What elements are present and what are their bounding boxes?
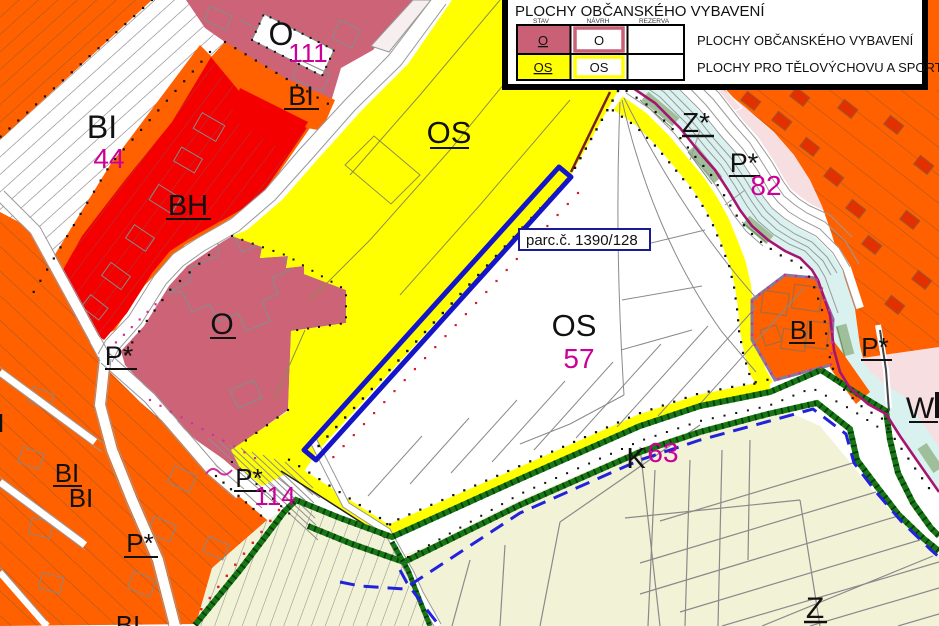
svg-text:NÁVRH: NÁVRH: [587, 16, 610, 25]
svg-text:57: 57: [563, 343, 594, 374]
svg-text:P*: P*: [105, 341, 134, 371]
svg-text:P*: P*: [126, 528, 153, 558]
svg-text:O: O: [210, 308, 233, 341]
svg-text:REZERVA: REZERVA: [639, 18, 670, 25]
svg-text:Z*: Z*: [682, 107, 710, 138]
svg-text:Z: Z: [806, 592, 824, 625]
svg-text:P*: P*: [861, 332, 888, 362]
svg-text:111: 111: [288, 38, 328, 68]
svg-text:OS: OS: [534, 60, 553, 75]
svg-text:O: O: [594, 33, 604, 48]
svg-text:OS: OS: [590, 60, 609, 75]
svg-text:BI: BI: [0, 408, 5, 438]
svg-text:K: K: [626, 443, 646, 475]
svg-text:BI: BI: [288, 81, 314, 111]
svg-text:BH: BH: [168, 190, 208, 222]
svg-text:BI: BI: [69, 483, 94, 513]
svg-text:OS: OS: [552, 308, 597, 343]
svg-text:STAV: STAV: [533, 18, 550, 25]
svg-text:BI: BI: [116, 610, 141, 626]
svg-text:82: 82: [750, 170, 781, 201]
svg-text:W: W: [906, 392, 935, 425]
svg-text:OS: OS: [427, 115, 472, 150]
svg-text:BI: BI: [87, 109, 117, 145]
svg-text:BI: BI: [790, 315, 815, 345]
svg-text:parc.č. 1390/128: parc.č. 1390/128: [526, 232, 638, 249]
svg-text:63: 63: [647, 437, 678, 468]
svg-text:44: 44: [93, 143, 124, 174]
svg-text:PLOCHY OBČANSKÉHO VYBAVENÍ: PLOCHY OBČANSKÉHO VYBAVENÍ: [697, 33, 914, 48]
svg-text:114: 114: [254, 481, 295, 511]
svg-text:O: O: [538, 33, 548, 48]
svg-text:PLOCHY PRO TĚLOVÝCHOVU A SPORT: PLOCHY PRO TĚLOVÝCHOVU A SPORT: [697, 60, 939, 75]
